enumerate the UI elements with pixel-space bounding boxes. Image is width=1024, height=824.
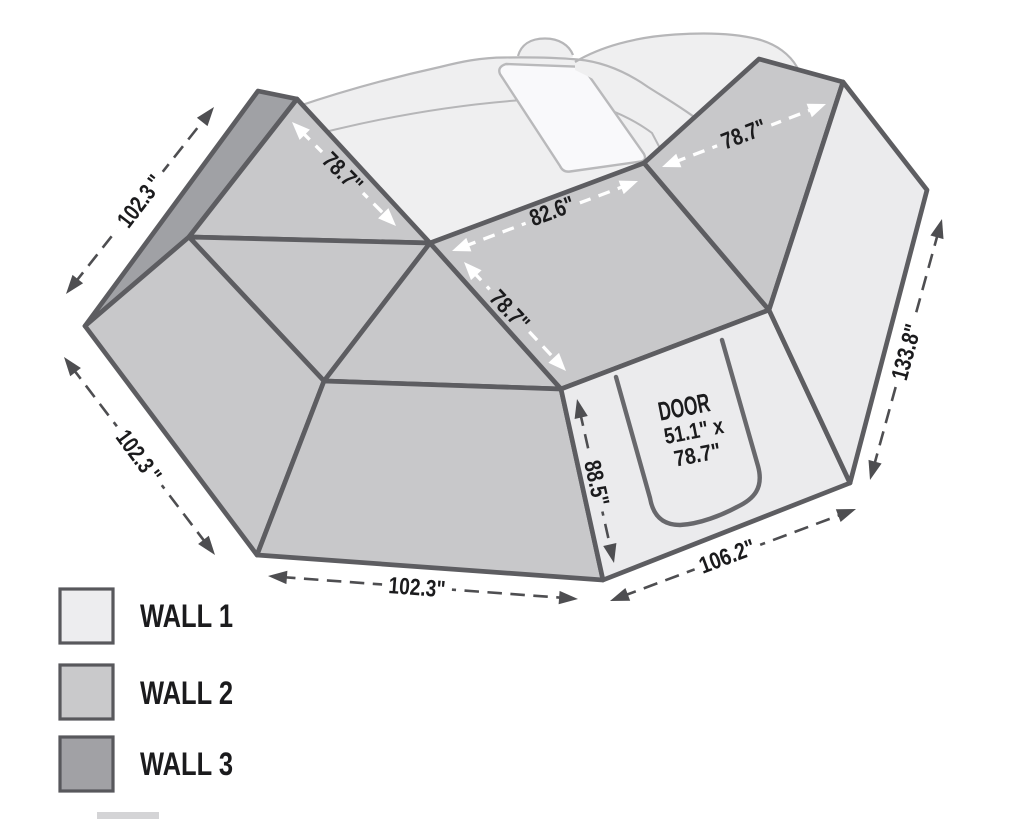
svg-text:WALL 3: WALL 3 xyxy=(140,746,233,782)
svg-text:WALL 2: WALL 2 xyxy=(140,675,233,711)
svg-text:102.3": 102.3" xyxy=(388,572,447,602)
svg-text:WALL 1: WALL 1 xyxy=(140,598,233,634)
